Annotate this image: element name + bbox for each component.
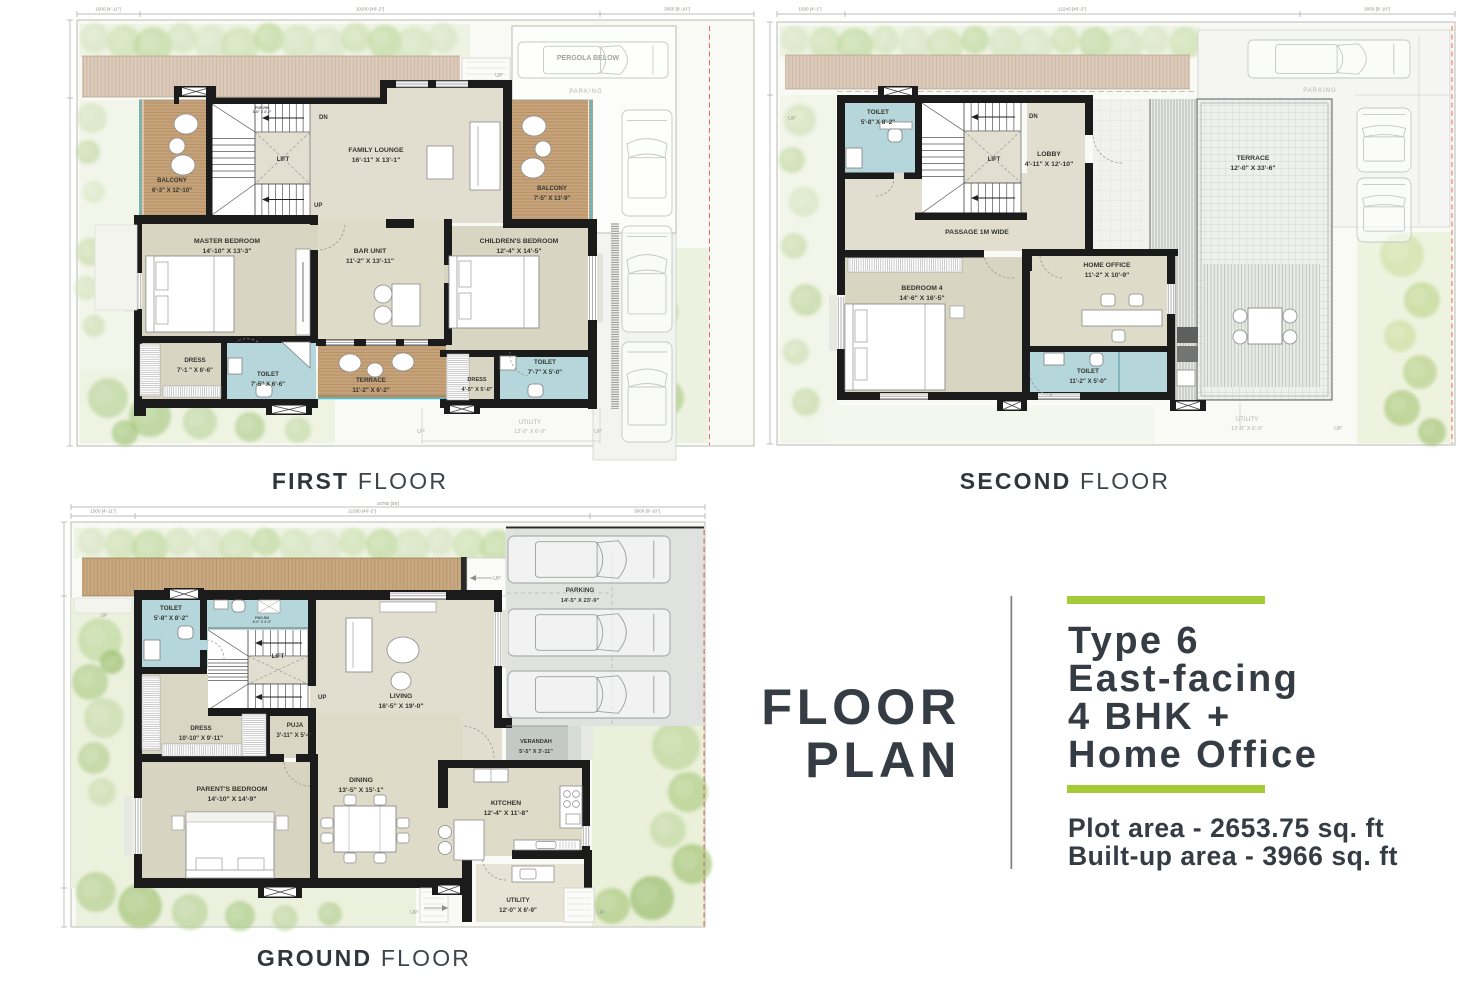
svg-text:1500 [4'-11"]: 1500 [4'-11"] [90, 509, 115, 514]
svg-text:6'-3" X 12'-10": 6'-3" X 12'-10" [152, 188, 192, 194]
svg-text:12260 [40'-2"]: 12260 [40'-2"] [348, 509, 376, 514]
svg-text:Home Office: Home Office [1068, 734, 1318, 776]
svg-text:PARENT'S BEDROOM: PARENT'S BEDROOM [197, 786, 268, 793]
svg-text:DINING: DINING [349, 777, 373, 784]
svg-text:DRESS: DRESS [184, 357, 205, 364]
svg-text:UP: UP [318, 695, 326, 701]
svg-text:UTILITY: UTILITY [506, 897, 530, 904]
svg-text:FAMILY LOUNGE: FAMILY LOUNGE [348, 147, 404, 154]
svg-text:12'-0" X 6'-9": 12'-0" X 6'-9" [499, 907, 537, 914]
svg-text:Built-up area - 3966 sq. ft: Built-up area - 3966 sq. ft [1068, 841, 1398, 871]
svg-text:TOILET: TOILET [1077, 368, 1099, 375]
svg-text:UP: UP [594, 429, 602, 435]
svg-text:12'-0" X 6'-9": 12'-0" X 6'-9" [1231, 426, 1263, 432]
svg-text:12240 [40'-2"]: 12240 [40'-2"] [1058, 7, 1086, 12]
svg-text:TERRACE: TERRACE [356, 377, 386, 384]
svg-text:7'-5" X 6'-6": 7'-5" X 6'-6" [251, 381, 285, 388]
svg-text:10'-10" X 9'-11": 10'-10" X 9'-11" [179, 735, 223, 742]
svg-text:4'-11" X 12'-10": 4'-11" X 12'-10" [1025, 161, 1074, 168]
svg-text:UP: UP [1334, 426, 1342, 432]
svg-text:5'-5" X 3'-11": 5'-5" X 3'-11" [519, 749, 553, 755]
svg-text:UP: UP [495, 73, 503, 79]
svg-text:7'-5" X 13'-9": 7'-5" X 13'-9" [534, 196, 571, 202]
svg-text:5'-8" X 8'-2": 5'-8" X 8'-2" [154, 615, 188, 622]
svg-text:12'-4" X 11'-8": 12'-4" X 11'-8" [484, 810, 529, 817]
svg-text:DRESS: DRESS [190, 725, 211, 732]
svg-text:13'-5" X 15'-1": 13'-5" X 15'-1" [338, 787, 383, 794]
svg-text:11'-2" X 13'-11": 11'-2" X 13'-11" [346, 258, 394, 265]
svg-text:UP: UP [597, 910, 605, 916]
svg-text:14'-10" X 13'-3": 14'-10" X 13'-3" [203, 248, 252, 255]
svg-text:14'-5" X 23'-9": 14'-5" X 23'-9" [561, 598, 600, 604]
svg-text:BALCONY: BALCONY [537, 186, 567, 192]
svg-text:5'-8" X 8'-2": 5'-8" X 8'-2" [861, 119, 895, 126]
svg-text:11'-2" X 5'-0": 11'-2" X 5'-0" [1069, 378, 1106, 385]
svg-text:16760 [55']: 16760 [55'] [377, 501, 400, 506]
svg-text:FIRST FLOOR: FIRST FLOOR [272, 468, 448, 494]
svg-text:3050 [9'-10"]: 3050 [9'-10"] [664, 7, 690, 12]
svg-text:UP: UP [314, 203, 322, 209]
svg-text:LIFT: LIFT [988, 157, 1001, 163]
svg-text:14'-6" X 16'-5": 14'-6" X 16'-5" [899, 295, 944, 302]
svg-text:12'-0" X 6'-9": 12'-0" X 6'-9" [514, 429, 546, 435]
svg-text:12'-4" X 14'-5": 12'-4" X 14'-5" [496, 248, 541, 255]
svg-text:SECOND FLOOR: SECOND FLOOR [960, 468, 1170, 494]
svg-text:FLOOR: FLOOR [761, 678, 961, 735]
svg-text:DN: DN [319, 115, 328, 121]
svg-text:UP: UP [410, 910, 418, 916]
svg-text:LIVING: LIVING [390, 693, 413, 700]
svg-text:BEDROOM 4: BEDROOM 4 [901, 285, 942, 292]
svg-text:East-facing: East-facing [1068, 658, 1299, 700]
svg-text:3'-11" X 5'-0": 3'-11" X 5'-0" [276, 732, 313, 739]
svg-text:14'-10" X 14'-9": 14'-10" X 14'-9" [208, 796, 257, 803]
svg-text:7'-7" X 5'-0": 7'-7" X 5'-0" [528, 369, 562, 376]
svg-text:11'-2" X 10'-9": 11'-2" X 10'-9" [1085, 272, 1130, 279]
svg-text:Plot area - 2653.75 sq. ft: Plot area - 2653.75 sq. ft [1068, 813, 1384, 843]
svg-text:PASSAGE 1M WIDE: PASSAGE 1M WIDE [945, 229, 1009, 236]
svg-text:7'-1 " X 6'-6": 7'-1 " X 6'-6" [177, 367, 213, 374]
svg-text:DN: DN [1029, 114, 1038, 120]
svg-text:PARKING: PARKING [569, 89, 603, 95]
svg-text:3050 [9'-10"]: 3050 [9'-10"] [1364, 7, 1390, 12]
svg-text:CHILDREN'S BEDROOM: CHILDREN'S BEDROOM [480, 238, 559, 245]
svg-text:UP: UP [101, 613, 109, 619]
svg-text:GROUND FLOOR: GROUND FLOOR [257, 945, 471, 971]
svg-text:TOILET: TOILET [257, 371, 279, 378]
svg-text:3000 [9'-10"]: 3000 [9'-10"] [634, 509, 660, 514]
svg-text:11'-2" X 6'-2": 11'-2" X 6'-2" [352, 387, 389, 394]
svg-text:PUJA: PUJA [287, 722, 304, 729]
svg-text:Type 6: Type 6 [1068, 620, 1200, 662]
svg-text:UTILITY: UTILITY [519, 420, 541, 426]
svg-text:16'-5" X 19'-0": 16'-5" X 19'-0" [378, 703, 423, 710]
svg-text:12'-0" X 33'-6": 12'-0" X 33'-6" [1230, 165, 1275, 172]
svg-text:BAR UNIT: BAR UNIT [354, 248, 387, 255]
svg-text:DRESS: DRESS [467, 377, 487, 383]
svg-text:LOBBY: LOBBY [1037, 151, 1061, 158]
svg-text:16'-11" X 13'-1": 16'-11" X 13'-1" [352, 157, 401, 164]
svg-text:TOILET: TOILET [160, 605, 182, 612]
svg-text:TERRACE: TERRACE [1237, 155, 1270, 162]
svg-text:10200 [40'-2"]: 10200 [40'-2"] [356, 7, 384, 12]
svg-text:UP: UP [417, 429, 425, 435]
svg-text:4 BHK +: 4 BHK + [1068, 696, 1232, 738]
svg-text:TOILET: TOILET [867, 109, 889, 116]
svg-text:4'-5" X 5'-0": 4'-5" X 5'-0" [462, 387, 493, 393]
svg-text:3'-0" X 3'-2": 3'-0" X 3'-2" [253, 110, 272, 114]
svg-text:1500 [4'-11"]: 1500 [4'-11"] [95, 7, 120, 12]
svg-text:VERANDAH: VERANDAH [520, 739, 552, 745]
svg-text:KITCHEN: KITCHEN [491, 800, 521, 807]
svg-text:HOME OFFICE: HOME OFFICE [1083, 262, 1131, 269]
svg-text:BALCONY: BALCONY [157, 178, 187, 184]
svg-text:UP: UP [788, 116, 796, 122]
svg-text:8'-0" X 3'-3": 8'-0" X 3'-3" [253, 620, 272, 624]
svg-text:PLAN: PLAN [805, 731, 961, 788]
svg-text:TOILET: TOILET [534, 359, 556, 366]
svg-text:UTILITY: UTILITY [1236, 417, 1258, 423]
svg-text:LIFT: LIFT [272, 654, 285, 660]
svg-text:UP: UP [493, 576, 501, 582]
svg-text:PARKING: PARKING [1303, 88, 1337, 94]
svg-text:1500 [4'-1"]: 1500 [4'-1"] [798, 7, 821, 12]
svg-text:LIFT: LIFT [277, 157, 290, 163]
svg-text:MASTER BEDROOM: MASTER BEDROOM [194, 238, 260, 245]
